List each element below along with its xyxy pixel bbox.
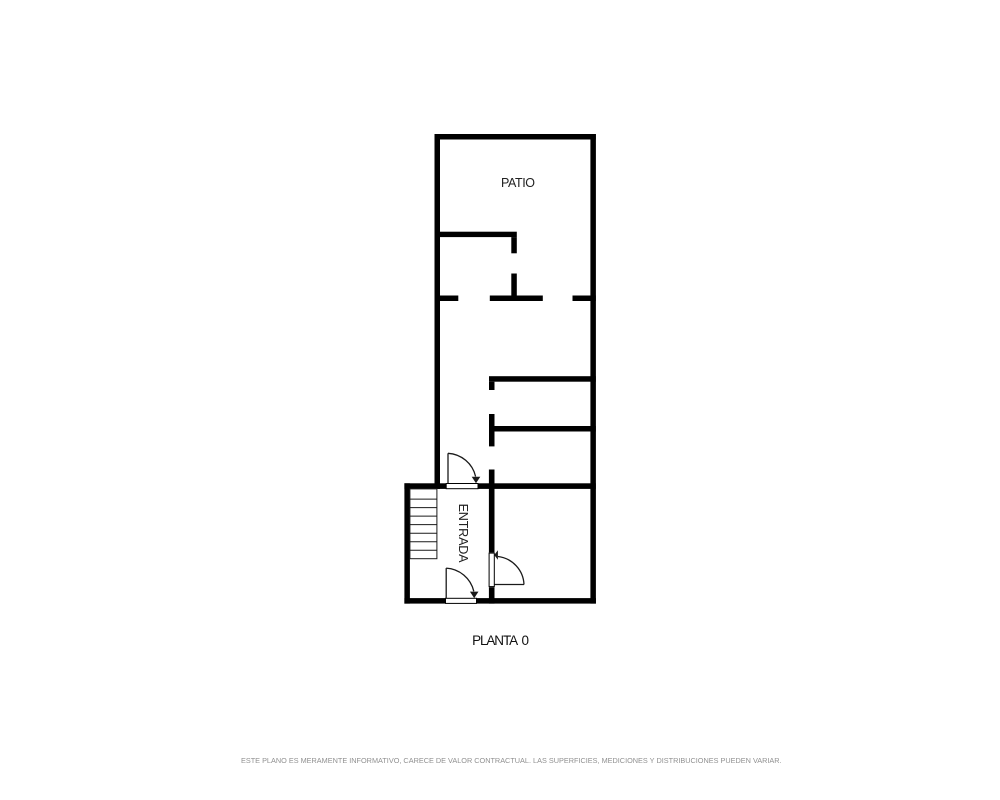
svg-text:PATIO: PATIO — [501, 176, 535, 190]
svg-text:ENTRADA: ENTRADA — [456, 504, 470, 564]
svg-text:PLANTA 0: PLANTA 0 — [472, 633, 528, 648]
svg-text:ESTE PLANO ES MERAMENTE INFORM: ESTE PLANO ES MERAMENTE INFORMATIVO, CAR… — [241, 756, 782, 765]
